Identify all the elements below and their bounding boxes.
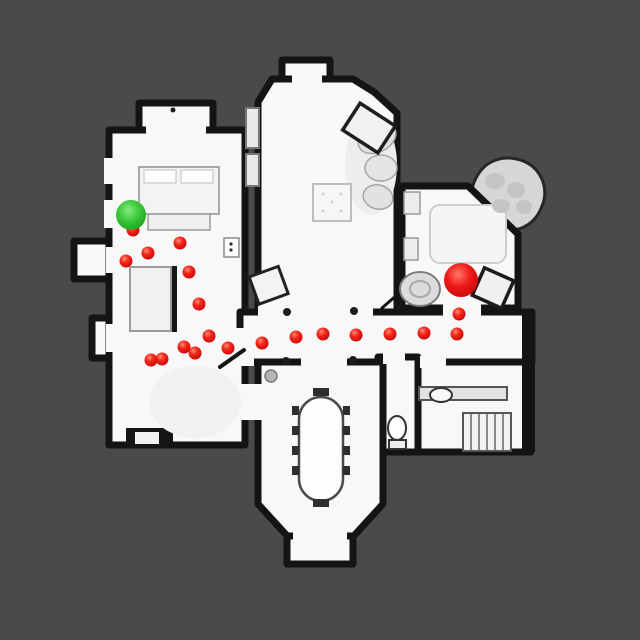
bed-left bbox=[139, 167, 219, 230]
window-ledge-2 bbox=[246, 154, 259, 186]
waypoint-dot bbox=[183, 266, 196, 279]
waypoint-dot bbox=[145, 354, 158, 367]
nightstand-1 bbox=[404, 192, 420, 214]
goal-marker bbox=[444, 263, 478, 297]
waypoint-dot bbox=[290, 331, 303, 344]
bed-right bbox=[430, 205, 506, 263]
dresser-left bbox=[130, 267, 171, 331]
goal-sphere bbox=[444, 263, 478, 297]
ottoman bbox=[313, 184, 351, 221]
fireplace-inner bbox=[135, 432, 159, 444]
waypoint-dot bbox=[384, 328, 397, 341]
rug-left bbox=[149, 366, 241, 438]
waypoint-dot bbox=[178, 341, 191, 354]
waypoint-dot bbox=[189, 347, 202, 360]
wall-panel bbox=[224, 238, 239, 257]
small-dot bbox=[171, 108, 176, 113]
waypoint-dot bbox=[451, 328, 464, 341]
waypoint-dot bbox=[222, 342, 235, 355]
waypoint-dot bbox=[156, 353, 169, 366]
waypoint-dot bbox=[120, 255, 133, 268]
nightstand-2 bbox=[404, 238, 418, 260]
floor-plan-map bbox=[0, 0, 640, 640]
waypoint-dot bbox=[174, 237, 187, 250]
pouf-swirl bbox=[400, 272, 440, 306]
waypoint-dot bbox=[350, 329, 363, 342]
waypoint-dot bbox=[453, 308, 466, 321]
waypoint-dot bbox=[193, 298, 206, 311]
right-outer-wall bbox=[522, 314, 535, 452]
wall-post-dot bbox=[282, 357, 290, 365]
waypoint-dot bbox=[203, 330, 216, 343]
wall-post-dot bbox=[283, 308, 291, 316]
wall-post-dot bbox=[349, 356, 357, 364]
waypoint-dot bbox=[142, 247, 155, 260]
start-sphere bbox=[116, 200, 146, 230]
waypoint-dot bbox=[317, 328, 330, 341]
screenshot-canvas bbox=[0, 0, 640, 640]
waypoint-dot bbox=[256, 337, 269, 350]
window-ledge-1 bbox=[246, 108, 259, 148]
waypoint-dot bbox=[418, 327, 431, 340]
start-marker bbox=[116, 200, 146, 230]
toilet-icon bbox=[388, 416, 406, 449]
door-stop-dot bbox=[265, 370, 277, 382]
wall-post-dot bbox=[350, 307, 358, 315]
dining-table bbox=[299, 397, 343, 501]
